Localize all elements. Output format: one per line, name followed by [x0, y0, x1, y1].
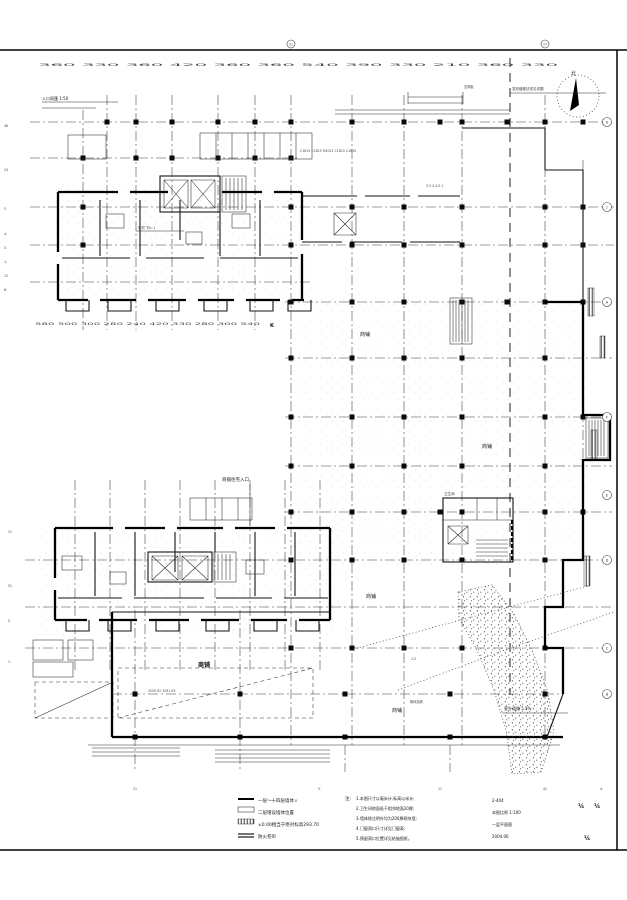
wall-hatch-chip [584, 556, 590, 586]
slope-band [350, 585, 614, 774]
joint-note: 变形缝做法详见详图 [512, 86, 544, 91]
bottom-dim-token: 21 [133, 787, 137, 791]
right-notes-block: 2-404 本图比例 1:100 一层平面图 2004.06 ¼ ¼ ¼ [492, 798, 600, 842]
right-note-line: 2004.06 [492, 834, 509, 839]
shaft-x-box [334, 213, 356, 235]
left-axis-token: 3. [4, 246, 7, 250]
left-axis-token: 51 [8, 584, 12, 588]
left-axis-token: 5. [8, 619, 11, 623]
axis-bubble-label: 27 [543, 43, 547, 47]
wall-hatch-chip [588, 288, 594, 316]
notes-line: 3.墙体除注明外均为200厚砌块墙; [356, 815, 417, 821]
top-dimension-row: 360 330 360 420 360 360 540 390 330 210 … [38, 63, 558, 67]
entrance-note: 商铺住宅入口 [222, 476, 249, 483]
drawing-sheet: 北 [0, 0, 627, 900]
room-label-shop: 商铺 [366, 593, 376, 600]
left-axis-token: 5 [4, 207, 6, 211]
legend-item: 防火卷帘 [258, 833, 276, 840]
axis-bubble-label: J [605, 206, 607, 210]
retaining-note: 砌体挡墙 [410, 699, 424, 704]
slope-ratio: 1:2 [411, 657, 416, 661]
notes-line: 1.本图尺寸以毫米计,标高以米计; [356, 795, 414, 801]
legend-block: 一层～十四层墙体 二层增设墙体位置 ±0.00相当于绝对标高293.70 防火卷… [238, 797, 319, 840]
detail-fraction-mark: ¼ [584, 835, 590, 842]
room-label-toilet: 卫生间 [444, 491, 455, 496]
left-axis-token: 1. [8, 660, 11, 664]
mid-dimension-row: 580 500 300 280 240 420 330 280 300 540 [35, 322, 260, 326]
axis-bubble-label: E [606, 494, 608, 498]
axis-bubble-label: F [606, 416, 608, 420]
legend-item: 一层～十四层墙体 [258, 797, 294, 804]
dim-cluster: 3.3 2.4 5.1 [426, 184, 443, 188]
room-label-shop: 商铺 [482, 443, 492, 450]
ac-slab-note: 空调板 [464, 84, 474, 89]
legend-symbol-outline [238, 807, 254, 812]
north-arrow: 北 [557, 70, 599, 117]
scan-noise [40, 180, 590, 640]
bottom-dim-token: 41 [543, 787, 547, 791]
north-label: 北 [571, 70, 576, 77]
notes-line: 2.卫生间地面低于相邻地面20厚; [356, 805, 414, 811]
entrance-steps [215, 750, 330, 762]
left-axis-token: 1: [4, 260, 7, 264]
notes-title: 注: [345, 795, 351, 802]
bottom-dim-token: 5. [318, 787, 321, 791]
detail-fraction-mark: ¼ [594, 803, 600, 810]
notes-line: 4.门窗洞口尺寸详见门窗表; [356, 825, 405, 831]
notes-line: 5.预留洞口位置详见结施图纸。 [356, 835, 412, 841]
detail-fraction-mark: ¼ [578, 803, 584, 810]
floor-plan-drawing: 北 [0, 0, 627, 900]
canopy-note: 入口雨篷 1:50 [42, 95, 69, 101]
right-note-line: 本图比例 1:100 [492, 809, 521, 815]
entrance-steps [92, 748, 180, 756]
core-dims: 3250.92 3291.63 [148, 689, 175, 693]
bottom-dim-token: 4. [600, 787, 603, 791]
bottom-dim-sub: 8 [295, 799, 297, 803]
axis-bubble-label: 21 [289, 43, 293, 47]
room-label-shop: 商铺 [360, 331, 370, 338]
left-axis-token: 12 [4, 274, 8, 278]
lower-left-annex [33, 640, 113, 718]
right-note-line: 2-404 [492, 798, 504, 803]
road-note: 室外道路 5.5% [504, 705, 532, 711]
shutter-note: 卷帘门FJL-1 [138, 225, 155, 230]
general-notes-block: 注: 1.本图尺寸以毫米计,标高以米计; 2.卫生间地面低于相邻地面20厚; 3… [345, 795, 417, 841]
right-note-line: 一层平面图 [492, 821, 512, 827]
legend-symbol-hatch [238, 819, 254, 824]
legend-item: 二层增设墙体位置 [258, 809, 294, 816]
room-label-shop: 商铺 [392, 707, 402, 714]
axis-bubble-label: D [606, 559, 609, 563]
left-axis-token: 24 [4, 168, 8, 172]
axis-bubble-label: H [606, 301, 609, 305]
north-needle-icon [570, 78, 579, 111]
left-axis-token: 46 [4, 124, 8, 128]
entrance-canopy-lines [335, 92, 510, 114]
left-axis-token: 8: [4, 288, 7, 292]
mid-axis-letter: K [270, 323, 275, 329]
bottom-dim-token: 11 [438, 787, 442, 791]
wall-hatch-chip [600, 336, 605, 358]
legend-item: ±0.00相当于绝对标高293.70 [258, 821, 319, 828]
room-label-hall: 商铺 [198, 661, 210, 669]
window-schedule-row: C1815 C1815 M1021 C1815 C1815 [300, 149, 356, 153]
left-axis-token: 4. [4, 232, 7, 236]
left-axis-token: 11 [8, 530, 12, 534]
